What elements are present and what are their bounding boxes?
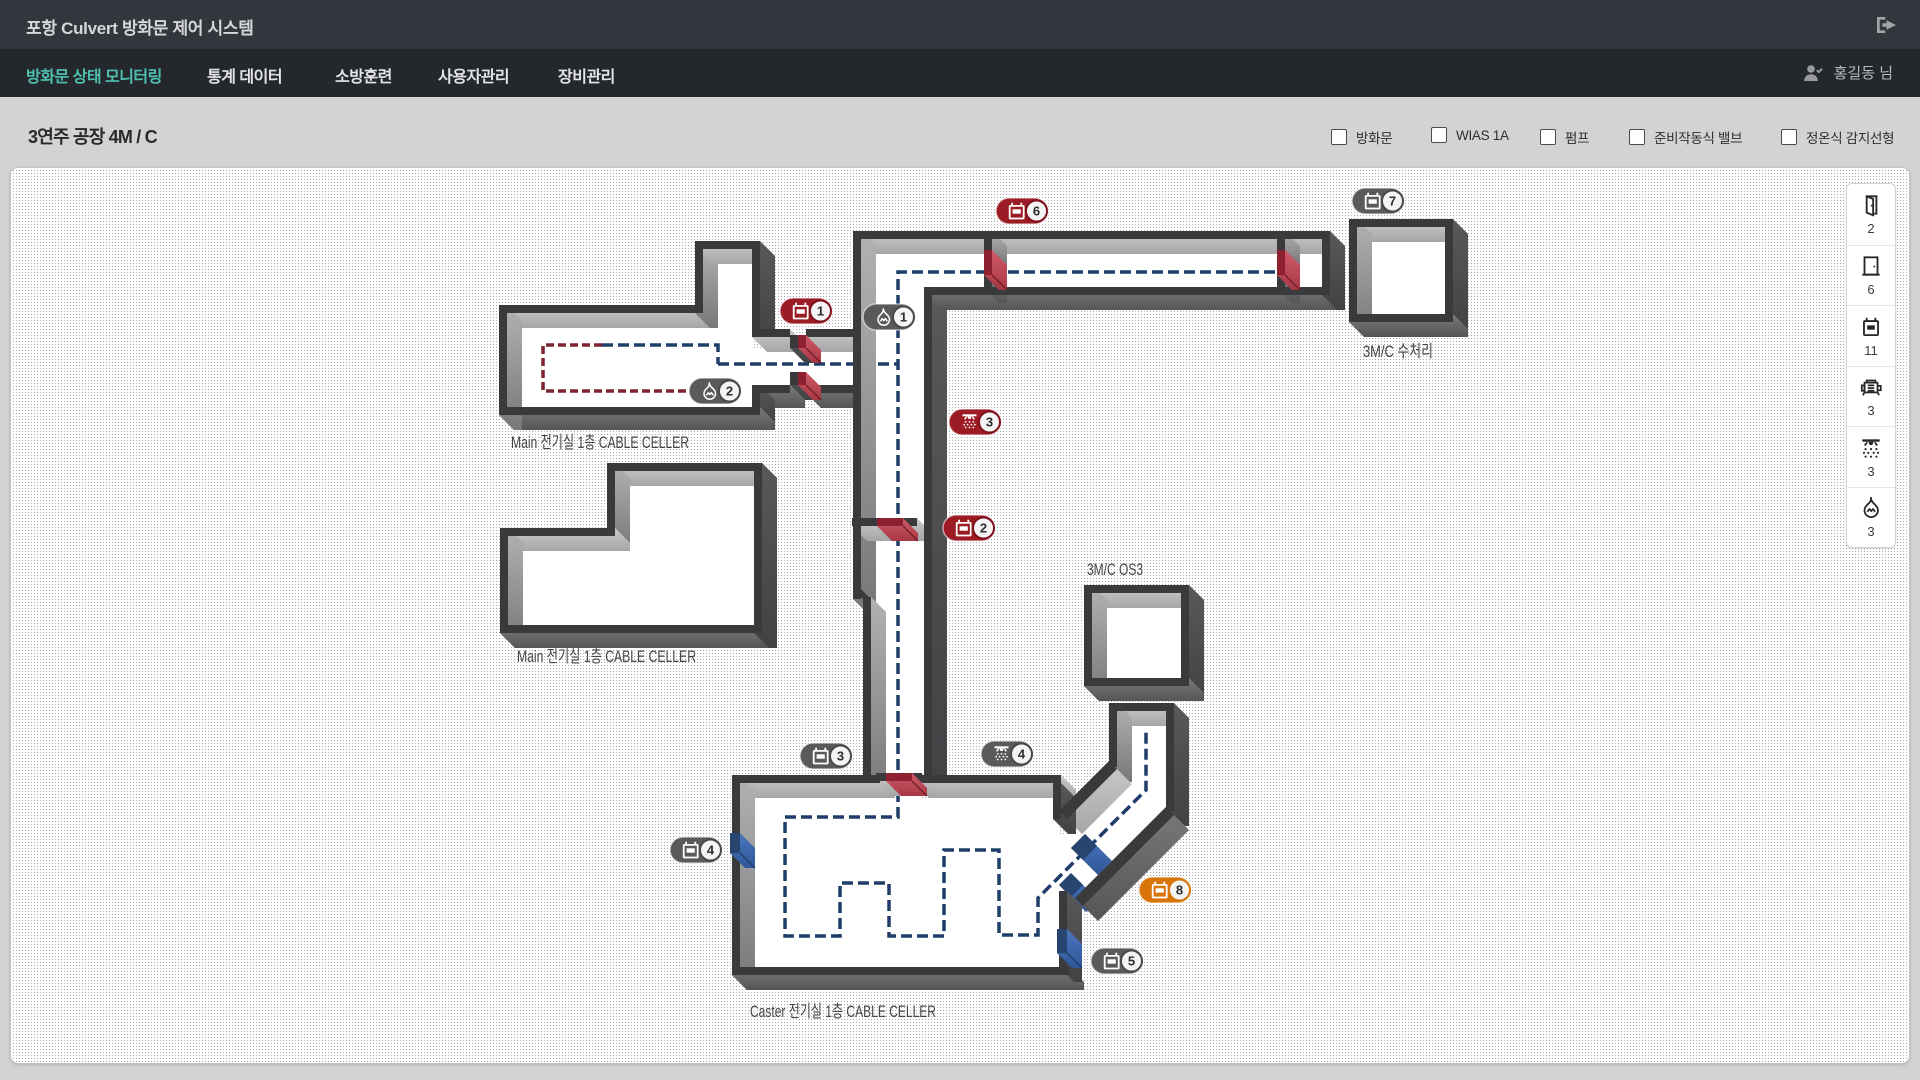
svg-text:8: 8 — [1176, 883, 1183, 898]
svg-text:3: 3 — [837, 749, 844, 764]
svg-text:Caster 전기실 1층 CABLE CELLER: Caster 전기실 1층 CABLE CELLER — [750, 1002, 936, 1021]
svg-text:2: 2 — [726, 384, 733, 399]
svg-text:4: 4 — [707, 843, 715, 858]
svg-text:3M/C 수처리: 3M/C 수처리 — [1363, 342, 1433, 361]
svg-text:3: 3 — [986, 415, 993, 430]
svg-text:1: 1 — [900, 310, 907, 325]
svg-text:3M/C OS3: 3M/C OS3 — [1087, 560, 1143, 579]
svg-text:7: 7 — [1389, 194, 1396, 209]
svg-text:1: 1 — [817, 304, 824, 319]
svg-text:6: 6 — [1033, 204, 1040, 219]
svg-text:Main 전기실 1층 CABLE CELLER: Main 전기실 1층 CABLE CELLER — [511, 433, 689, 452]
svg-text:4: 4 — [1018, 747, 1026, 762]
svg-text:Main 전기실 1층 CABLE CELLER: Main 전기실 1층 CABLE CELLER — [517, 647, 696, 666]
svg-text:5: 5 — [1128, 954, 1135, 969]
svg-text:2: 2 — [980, 521, 987, 536]
